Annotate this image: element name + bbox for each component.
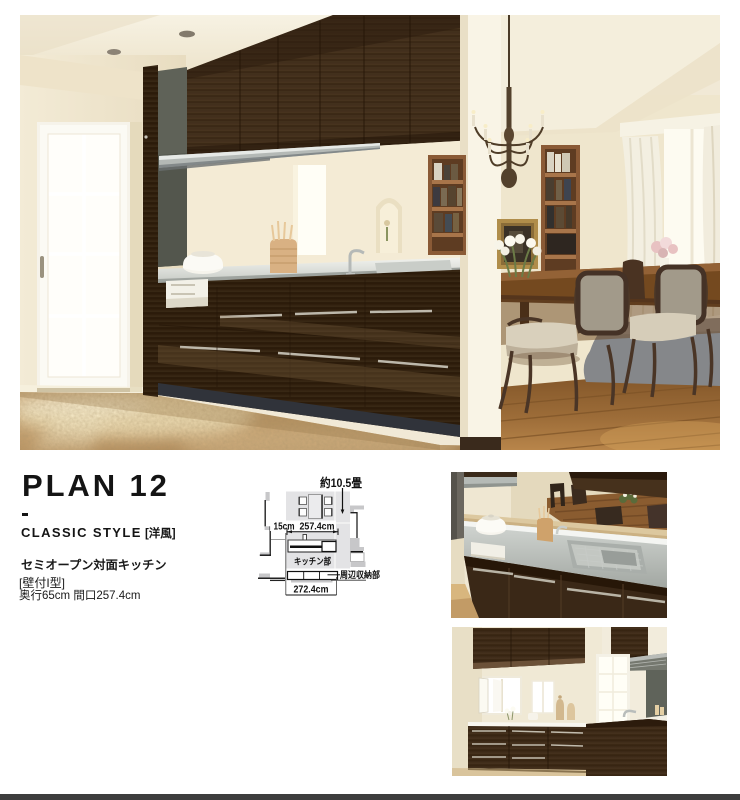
svg-text:約10.5畳: 約10.5畳	[320, 475, 362, 490]
svg-text:257.4cm: 257.4cm	[300, 522, 335, 533]
svg-text:キッチン部: キッチン部	[294, 556, 331, 567]
svg-text:周辺収納部: 周辺収納部	[340, 569, 380, 580]
svg-text:272.4cm: 272.4cm	[294, 585, 329, 596]
